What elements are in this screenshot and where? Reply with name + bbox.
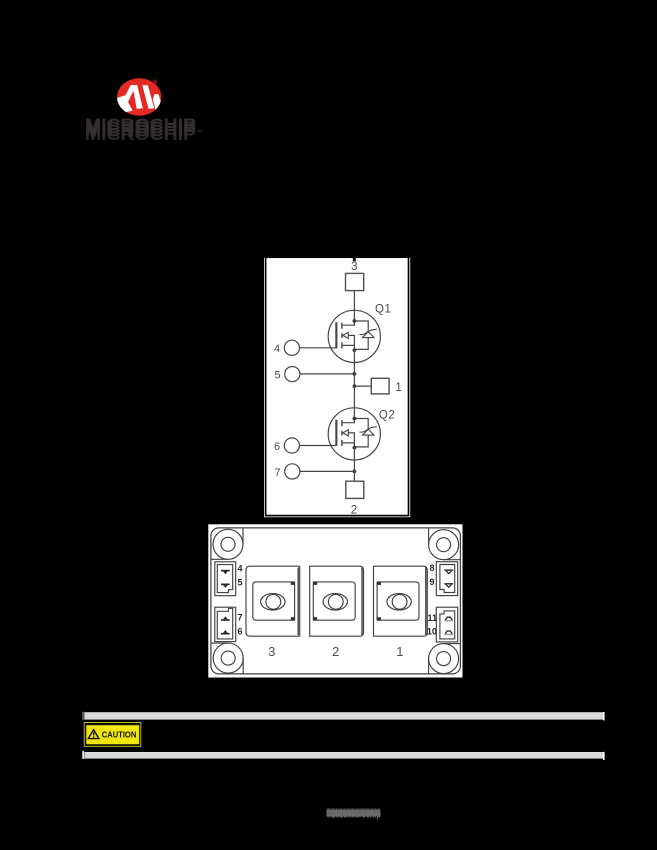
svg-text:9: 9: [429, 577, 434, 587]
svg-text:Q2: Q2: [379, 410, 396, 422]
svg-text:5: 5: [274, 369, 280, 381]
svg-text:7: 7: [274, 467, 280, 479]
svg-text:6: 6: [274, 441, 280, 453]
svg-text:2: 2: [351, 505, 357, 517]
svg-text:mnnooomommono: mnnooomommono: [326, 806, 381, 815]
svg-text:4: 4: [274, 343, 280, 355]
svg-text:8: 8: [429, 563, 434, 573]
svg-text:™: ™: [196, 129, 202, 136]
svg-text:2: 2: [332, 644, 339, 659]
svg-text:1: 1: [396, 644, 403, 659]
svg-text:4: 4: [237, 564, 242, 574]
svg-text:7: 7: [237, 613, 242, 623]
svg-text:3: 3: [351, 261, 357, 273]
svg-text:1: 1: [395, 382, 401, 394]
svg-text:CAUTION: CAUTION: [102, 731, 137, 740]
svg-text:6: 6: [237, 626, 242, 636]
svg-text:5: 5: [237, 577, 242, 587]
svg-text:10: 10: [427, 627, 437, 637]
svg-text:Q1: Q1: [375, 303, 392, 315]
svg-text:®: ®: [153, 78, 158, 86]
svg-text:11: 11: [428, 613, 438, 623]
svg-text:3: 3: [268, 644, 275, 659]
svg-text:MICROCHIP: MICROCHIP: [85, 124, 196, 144]
